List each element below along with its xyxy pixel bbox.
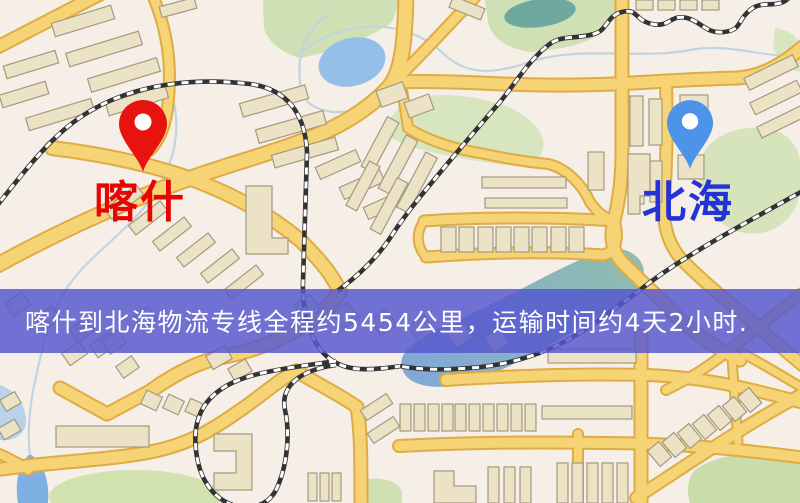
building	[636, 0, 653, 10]
building	[658, 0, 675, 10]
destination-pin-hole	[682, 113, 698, 129]
building	[496, 227, 511, 252]
origin-label: 喀什	[94, 181, 186, 225]
building	[428, 404, 439, 431]
street-map-canvas	[0, 0, 800, 503]
building	[414, 404, 425, 431]
building	[525, 404, 536, 431]
building	[617, 463, 628, 503]
building	[532, 227, 547, 252]
building	[588, 152, 604, 190]
building	[511, 404, 522, 431]
building	[442, 404, 453, 431]
building	[488, 467, 499, 503]
building	[485, 198, 567, 208]
building	[551, 227, 566, 252]
building	[483, 404, 494, 431]
road	[424, 218, 614, 221]
building	[482, 177, 566, 188]
building	[455, 404, 466, 431]
building	[469, 404, 480, 431]
building	[514, 227, 529, 252]
building	[680, 0, 697, 10]
building	[56, 426, 149, 447]
building	[497, 404, 508, 431]
building	[459, 227, 474, 252]
building	[332, 473, 341, 501]
route-info-banner: 喀什到北海物流专线全程约5454公里，运输时间约4天2小时.	[0, 289, 800, 353]
building	[587, 463, 598, 503]
building	[602, 463, 613, 503]
map-viewport[interactable]: 喀什 北海 喀什到北海物流专线全程约5454公里，运输时间约4天2小时.	[0, 0, 800, 503]
building	[630, 96, 643, 146]
building	[400, 404, 411, 431]
building	[649, 99, 662, 145]
building	[441, 227, 456, 252]
building	[572, 463, 583, 503]
building	[520, 467, 531, 503]
building	[504, 467, 515, 503]
building	[557, 463, 568, 503]
building	[569, 227, 584, 252]
building	[702, 0, 719, 10]
building	[478, 227, 493, 252]
building	[320, 473, 329, 501]
origin-pin-hole	[135, 114, 152, 131]
building	[308, 473, 317, 501]
route-info-text: 喀什到北海物流专线全程约5454公里，运输时间约4天2小时.	[25, 303, 748, 339]
destination-label: 北海	[642, 181, 734, 225]
building	[542, 406, 632, 419]
